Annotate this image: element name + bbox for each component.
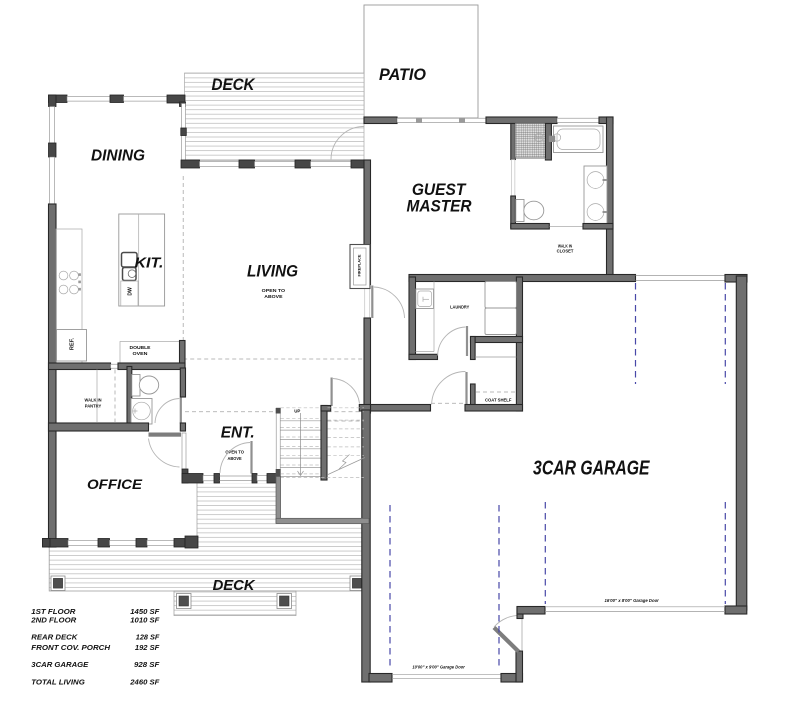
svg-text:1010 SF: 1010 SF — [130, 615, 159, 624]
svg-text:PANTRY: PANTRY — [85, 404, 102, 409]
svg-text:REF.: REF. — [70, 337, 76, 350]
svg-text:OPEN TO: OPEN TO — [262, 288, 286, 294]
svg-text:PATIO: PATIO — [379, 65, 426, 84]
svg-text:LAUNDRY: LAUNDRY — [450, 304, 470, 310]
svg-text:3CAR GARAGE: 3CAR GARAGE — [533, 457, 651, 479]
svg-text:16'00" x 8'00" Garage Door: 16'00" x 8'00" Garage Door — [605, 598, 660, 603]
svg-text:3CAR GARAGE: 3CAR GARAGE — [31, 660, 89, 669]
svg-text:WALK IN: WALK IN — [85, 398, 102, 403]
svg-text:CLOSET: CLOSET — [557, 249, 574, 254]
svg-text:DOUBLE: DOUBLE — [130, 345, 151, 350]
svg-text:REAR DECK: REAR DECK — [31, 633, 78, 642]
svg-text:OPEN TO: OPEN TO — [225, 449, 244, 454]
svg-text:KIT.: KIT. — [135, 255, 164, 272]
svg-text:FIREPLACE: FIREPLACE — [357, 254, 362, 276]
svg-text:DW: DW — [128, 287, 134, 296]
svg-text:ENT.: ENT. — [221, 425, 255, 442]
svg-text:ABOVE: ABOVE — [264, 294, 283, 300]
svg-text:2460 SF: 2460 SF — [129, 677, 160, 686]
svg-text:DINING: DINING — [91, 147, 145, 164]
svg-text:COAT SHELF: COAT SHELF — [485, 397, 512, 402]
svg-text:OFFICE: OFFICE — [87, 477, 143, 492]
svg-text:2ND FLOOR: 2ND FLOOR — [30, 615, 77, 624]
svg-text:UP: UP — [294, 409, 300, 414]
svg-text:MASTER: MASTER — [407, 196, 473, 215]
svg-text:928 SF: 928 SF — [134, 660, 160, 669]
svg-text:FRONT COV. PORCH: FRONT COV. PORCH — [31, 643, 111, 652]
svg-text:192 SF: 192 SF — [135, 643, 160, 652]
svg-text:OVEN: OVEN — [133, 351, 148, 356]
svg-text:DECK: DECK — [212, 76, 256, 94]
svg-text:LIVING: LIVING — [247, 263, 298, 281]
svg-text:TOTAL LIVING: TOTAL LIVING — [31, 677, 85, 686]
svg-text:ABOVE: ABOVE — [228, 456, 242, 461]
svg-text:10'00" x 9'00" Garage Door: 10'00" x 9'00" Garage Door — [412, 664, 465, 669]
svg-text:128 SF: 128 SF — [136, 633, 160, 642]
